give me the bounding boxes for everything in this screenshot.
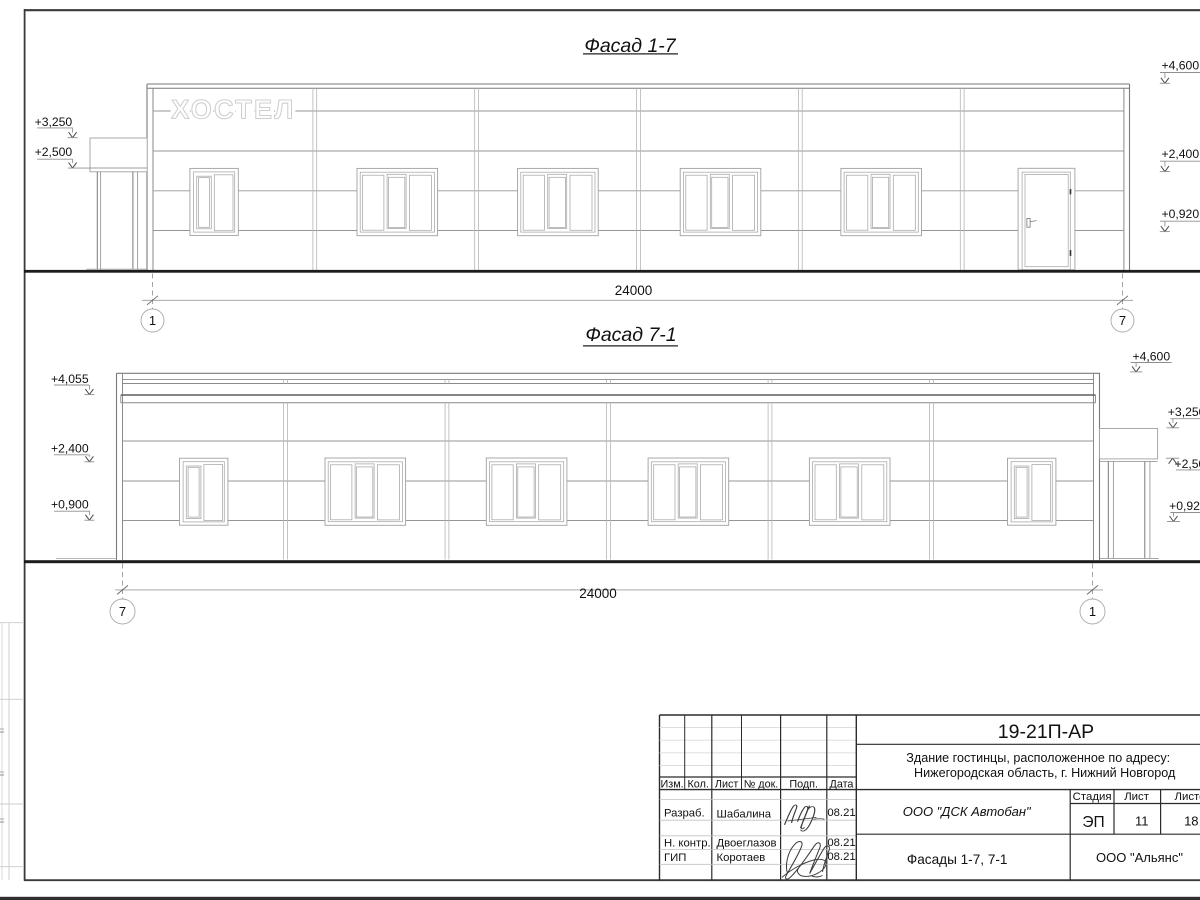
svg-text:+2,500: +2,500: [35, 145, 73, 159]
svg-text:+0,920: +0,920: [1162, 207, 1200, 221]
svg-text:Фасады 1-7, 7-1: Фасады 1-7, 7-1: [907, 852, 1008, 867]
svg-text:Подп.: Подп.: [789, 779, 818, 791]
svg-text:+3,250: +3,250: [35, 115, 73, 129]
svg-text:Дата: Дата: [830, 779, 854, 791]
svg-text:ООО "Альянс": ООО "Альянс": [1096, 850, 1183, 865]
svg-text:Шабалина: Шабалина: [717, 809, 772, 821]
svg-text:Кол.: Кол.: [688, 779, 709, 791]
svg-text:+2,400: +2,400: [1162, 147, 1200, 161]
svg-text:1: 1: [149, 313, 156, 328]
svg-text:ГИП: ГИП: [664, 852, 686, 864]
svg-text:+4,600: +4,600: [1162, 59, 1200, 73]
svg-text:24000: 24000: [579, 586, 617, 601]
svg-text:+2,500: +2,500: [1175, 457, 1200, 471]
svg-text:+4,600: +4,600: [1133, 349, 1171, 363]
svg-text:Фасад 7-1: Фасад 7-1: [585, 324, 676, 346]
svg-text:Н. контр.: Н. контр.: [664, 838, 711, 850]
svg-text:+3,250: +3,250: [1168, 405, 1200, 419]
svg-text:Листов: Листов: [1174, 791, 1200, 803]
svg-text:Коротаев: Коротаев: [717, 852, 766, 864]
svg-text:Лист: Лист: [715, 779, 739, 791]
svg-text:08.21: 08.21: [827, 837, 855, 849]
svg-text:08.21: 08.21: [827, 807, 855, 819]
svg-text:+0,920: +0,920: [1169, 499, 1200, 513]
svg-text:ЭП: ЭП: [1082, 814, 1104, 831]
svg-text:+2,400: +2,400: [51, 442, 89, 456]
svg-text:Здание гостинцы, расположенное: Здание гостинцы, расположенное по адресу…: [906, 751, 1170, 765]
svg-text:Лист: Лист: [1124, 791, 1150, 803]
svg-text:Изм.: Изм.: [661, 779, 684, 791]
svg-text:+4,055: +4,055: [51, 372, 89, 386]
svg-text:7: 7: [1119, 313, 1126, 328]
svg-text:08.21: 08.21: [827, 851, 855, 863]
svg-text:+0,900: +0,900: [51, 498, 89, 512]
svg-text:19-21П-АР: 19-21П-АР: [998, 721, 1094, 743]
svg-text:ХОСТЕЛ: ХОСТЕЛ: [171, 95, 295, 125]
svg-text:Стадия: Стадия: [1073, 791, 1112, 803]
svg-text:7: 7: [119, 604, 126, 619]
svg-text:24000: 24000: [615, 283, 653, 298]
svg-text:Нижегородская область, г. Нижн: Нижегородская область, г. Нижний Новгоро…: [914, 766, 1176, 780]
svg-text:18: 18: [1184, 813, 1198, 828]
svg-text:1: 1: [1089, 604, 1096, 619]
svg-text:№ док.: № док.: [744, 779, 779, 791]
svg-text:Двоеглазов: Двоеглазов: [717, 838, 777, 850]
svg-text:11: 11: [1135, 813, 1149, 828]
svg-text:ООО "ДСК Автобан": ООО "ДСК Автобан": [903, 804, 1032, 819]
svg-text:Разраб.: Разраб.: [664, 808, 705, 820]
